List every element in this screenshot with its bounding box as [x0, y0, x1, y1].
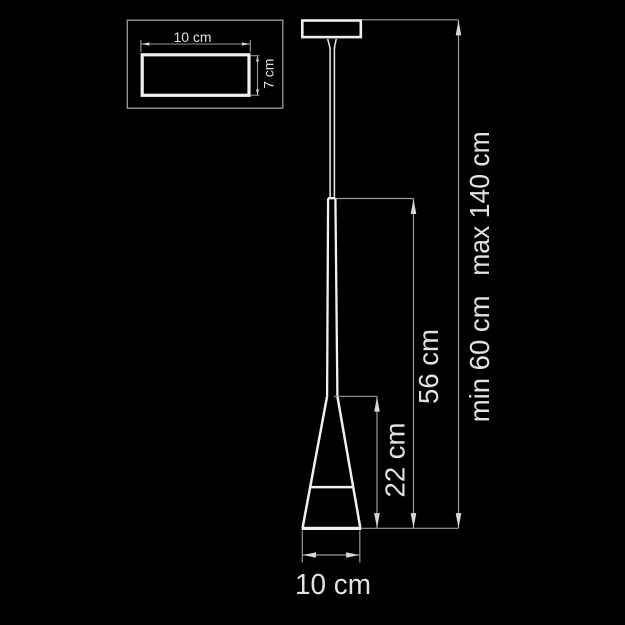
svg-text:10 cm: 10 cm	[173, 29, 211, 45]
svg-text:min 60 cm: min 60 cm	[464, 295, 495, 422]
svg-text:max 140 cm: max 140 cm	[464, 131, 495, 276]
svg-text:22 cm: 22 cm	[380, 423, 411, 498]
svg-text:10 cm: 10 cm	[295, 569, 371, 601]
svg-text:56 cm: 56 cm	[413, 329, 444, 404]
svg-text:7 cm: 7 cm	[260, 59, 276, 89]
